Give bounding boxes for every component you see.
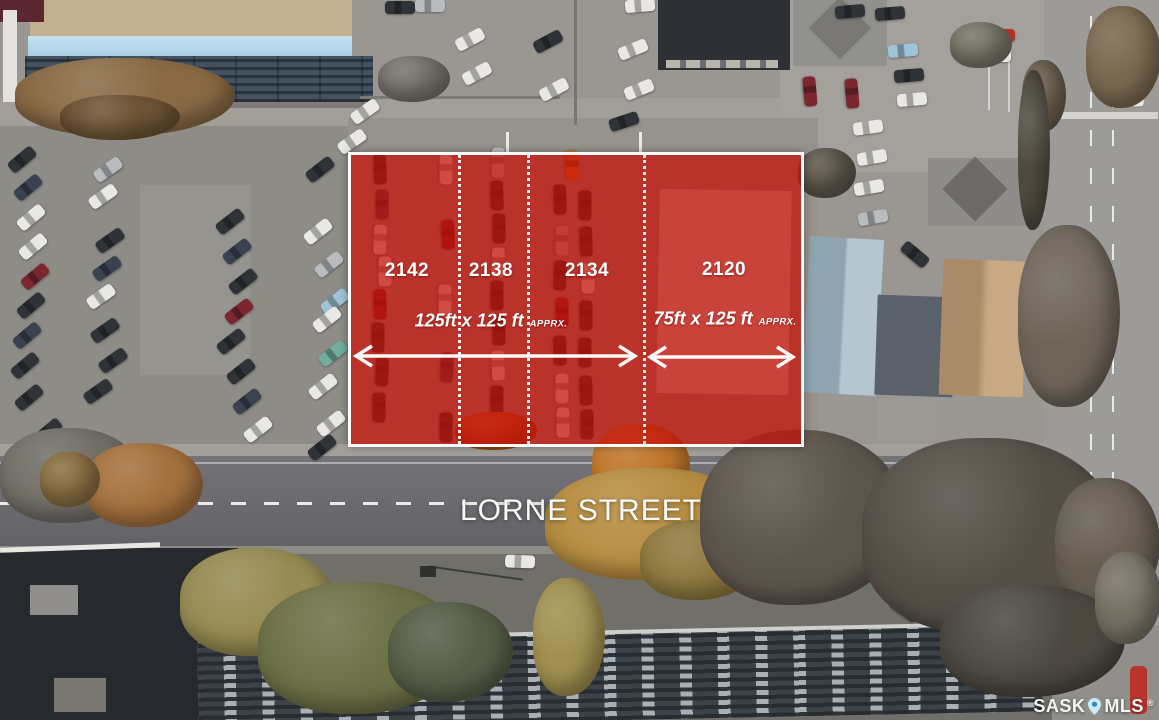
lot-number-2134: 2134	[565, 260, 609, 282]
scenery	[30, 585, 78, 615]
dimension-size: 125ft x 125 ft	[415, 311, 524, 332]
car	[802, 76, 818, 107]
scenery	[639, 132, 642, 152]
scenery	[506, 132, 509, 152]
car	[896, 92, 927, 108]
tree	[1095, 552, 1159, 644]
lot-divider-line	[458, 155, 461, 444]
lot-number-2120: 2120	[702, 259, 746, 281]
watermark-text-mls: MLS	[1104, 696, 1144, 717]
dimension-qualifier: APPRX.	[530, 319, 568, 330]
dimension-qualifier: APPRX.	[759, 317, 797, 328]
car	[834, 4, 865, 20]
car	[853, 178, 885, 196]
mls-watermark: SASK MLS ®	[1033, 696, 1154, 717]
scenery	[30, 0, 352, 38]
car	[532, 29, 565, 55]
highlight-overlay: 2142 2138 2134 2120 125ft x 125 ft APPRX…	[348, 152, 804, 447]
scenery	[878, 398, 940, 440]
car	[624, 0, 655, 13]
lot-divider-line	[643, 155, 646, 444]
car	[461, 61, 494, 87]
car	[454, 27, 487, 53]
tree	[1086, 6, 1159, 108]
car	[505, 554, 535, 568]
car	[385, 1, 415, 14]
dimension-label-west-lots: 125ft x 125 ft APPRX.	[415, 311, 568, 332]
car	[874, 6, 905, 22]
tree	[798, 148, 856, 198]
car	[857, 208, 889, 226]
scenery	[939, 259, 1028, 398]
scenery	[666, 60, 778, 68]
scenery	[1008, 54, 1010, 112]
lot-divider-line	[527, 155, 530, 444]
scenery	[420, 566, 436, 577]
car	[887, 43, 918, 59]
scenery	[802, 236, 884, 396]
watermark-text-sask: SASK	[1033, 696, 1085, 717]
car	[899, 240, 930, 269]
car	[617, 38, 650, 61]
car	[893, 68, 924, 84]
scenery	[54, 678, 106, 712]
lot-number-2138: 2138	[469, 260, 513, 282]
registered-symbol: ®	[1147, 698, 1154, 708]
lot-number-2142: 2142	[385, 260, 429, 282]
scenery	[28, 36, 352, 58]
street-name-label: LORNE STREET	[460, 494, 702, 528]
car	[844, 78, 860, 109]
scenery	[574, 0, 577, 125]
map-pin-icon	[1088, 698, 1101, 715]
dimension-size: 75ft x 125 ft	[654, 309, 753, 330]
dimension-label-east-lot: 75ft x 125 ft APPRX.	[654, 309, 797, 330]
car	[415, 0, 445, 12]
aerial-photo: 2142 2138 2134 2120 125ft x 125 ft APPRX…	[0, 0, 1159, 720]
